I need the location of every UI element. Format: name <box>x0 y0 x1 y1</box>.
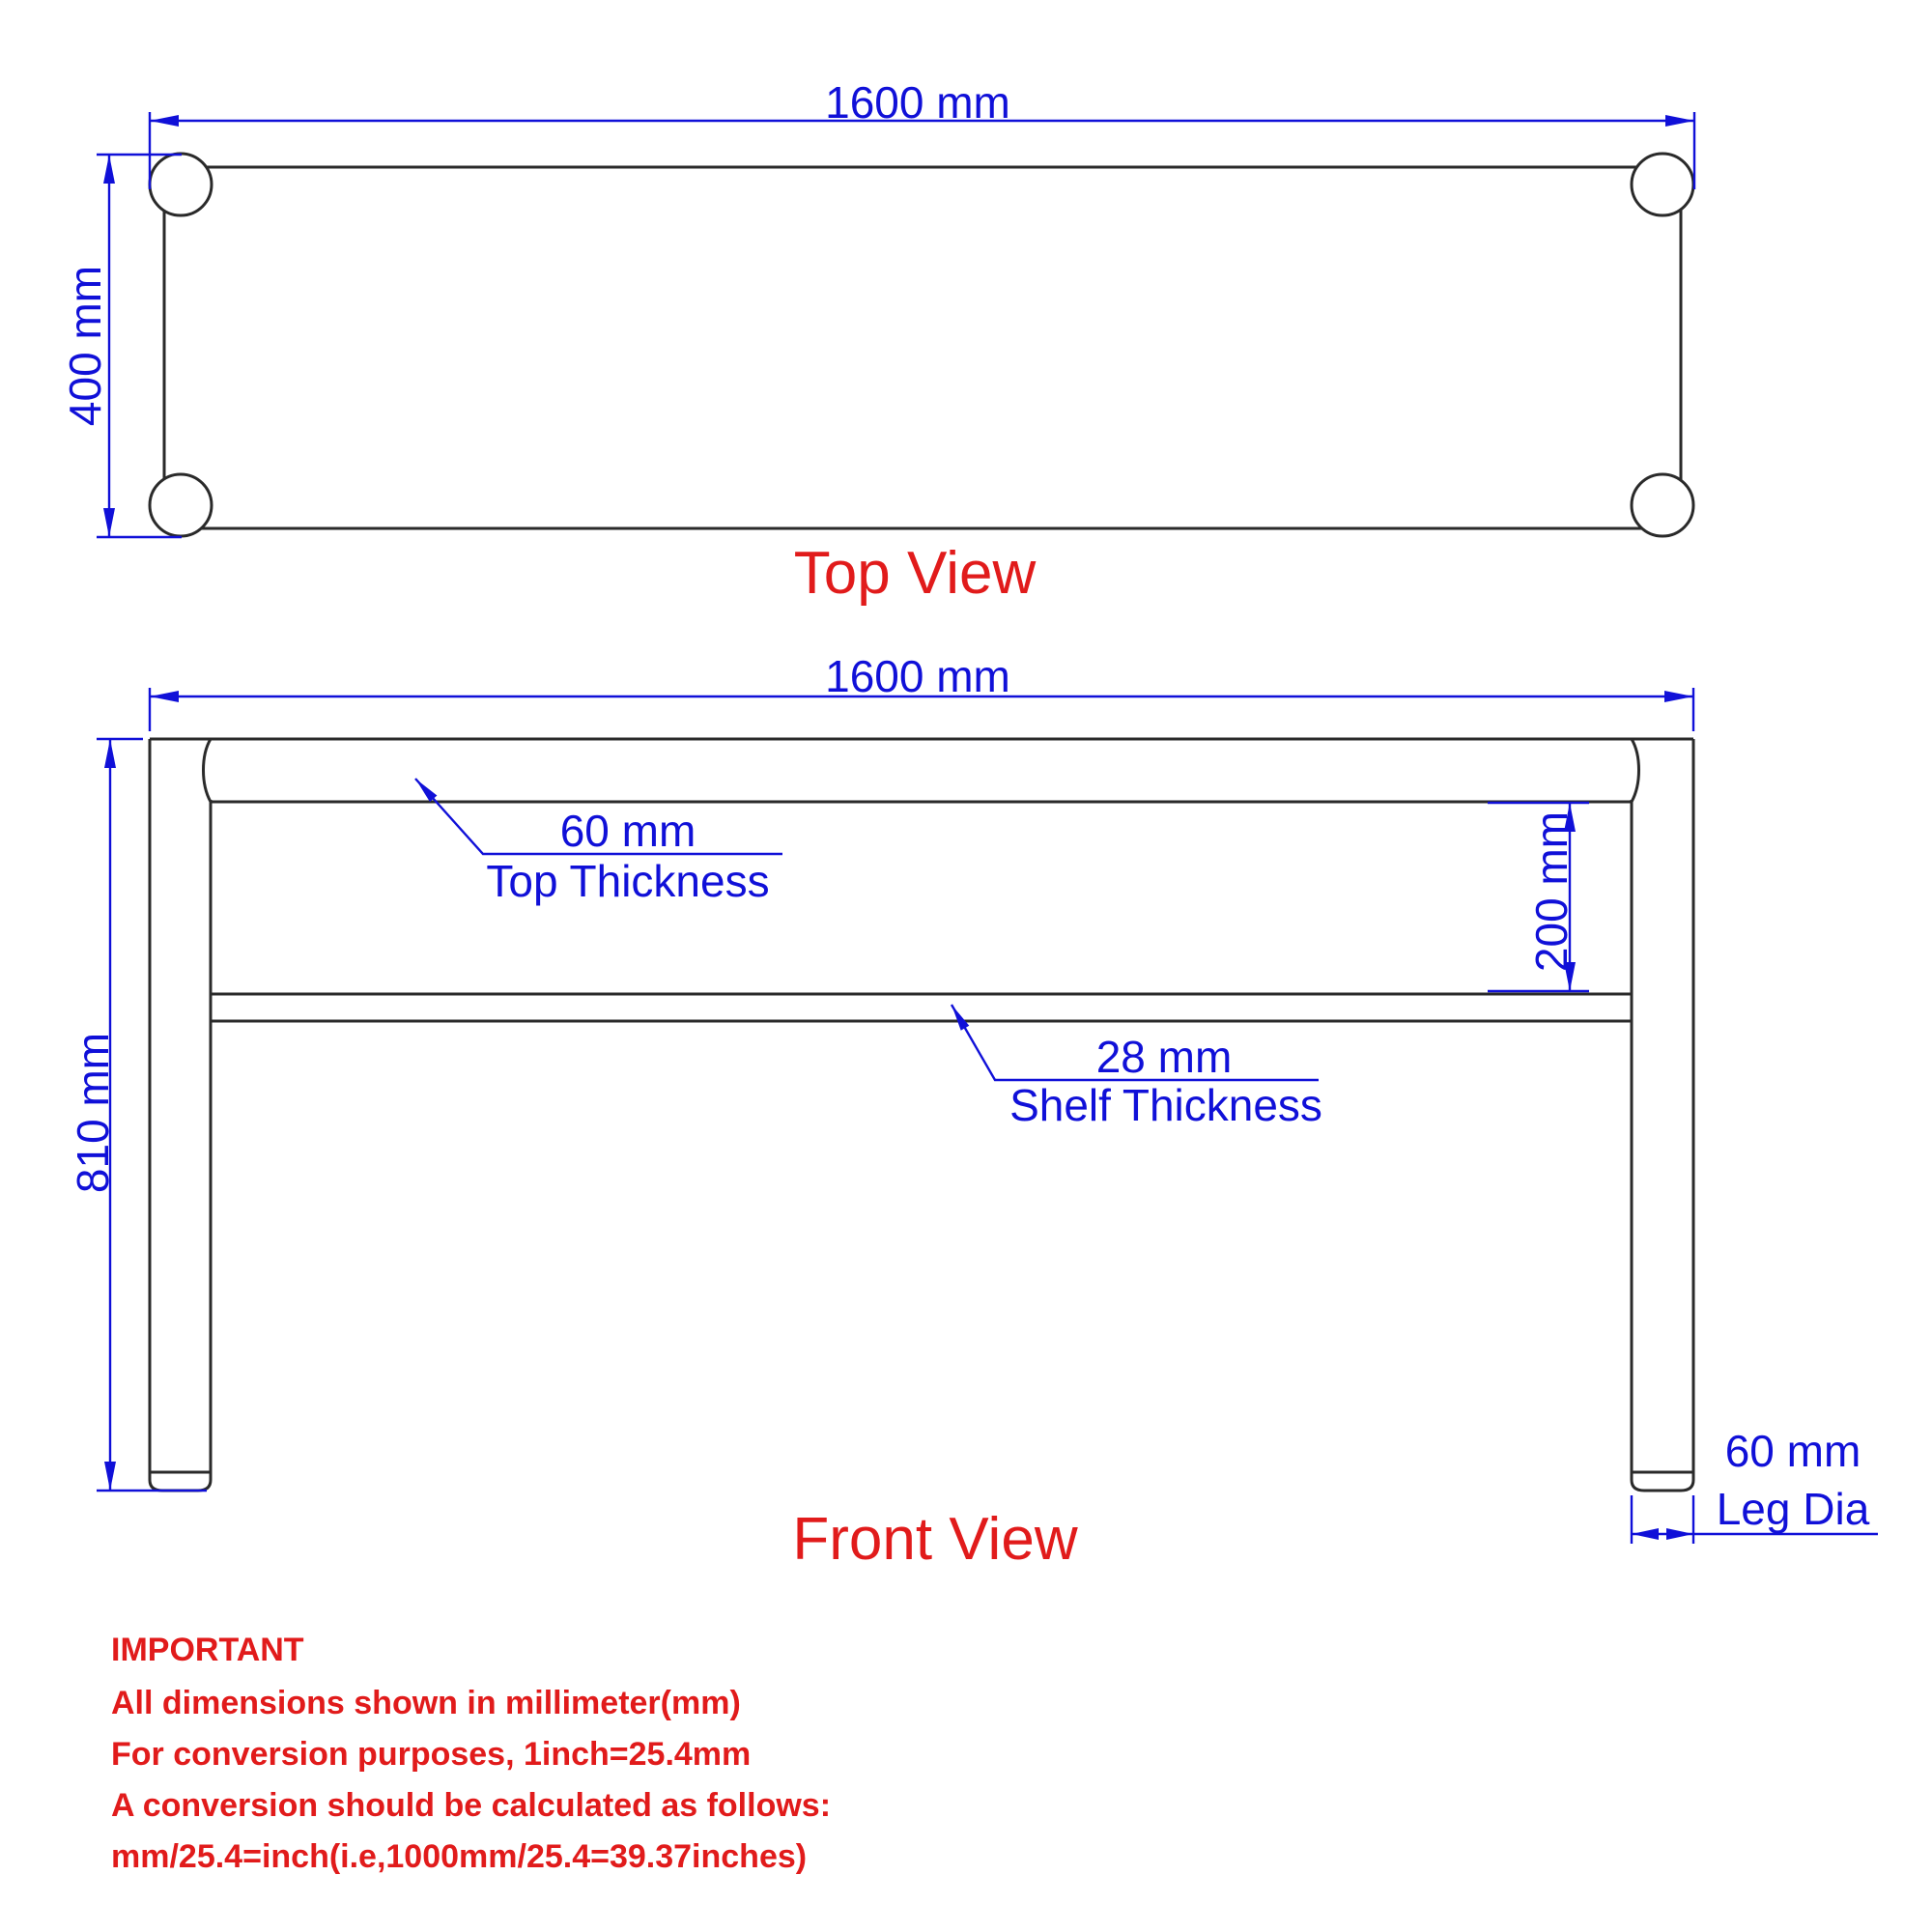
top-view-title: Top View <box>794 540 1037 607</box>
arrow-right-icon <box>1664 691 1693 702</box>
left-leg-top-fillet <box>204 739 212 802</box>
tabletop-outline <box>164 167 1681 528</box>
arrow-right-icon <box>1666 1528 1693 1540</box>
notes-line: For conversion purposes, 1inch=25.4mm <box>111 1736 751 1773</box>
arrow-left-icon <box>150 115 179 127</box>
furniture-dimension-drawing: 1600 mm 400 mm Top View 1600 mm <box>0 0 1932 1932</box>
leg-circle-bottom-right <box>1632 474 1693 536</box>
important-notes: IMPORTANT All dimensions shown in millim… <box>111 1632 831 1875</box>
arrow-up-icon <box>103 155 115 184</box>
top-thickness-label: Top Thickness <box>486 856 769 906</box>
leader-arrow-icon <box>952 1005 969 1031</box>
left-leg-foot-cap <box>150 1472 211 1491</box>
leg-circle-top-left <box>150 154 212 215</box>
notes-line: A conversion should be calculated as fol… <box>111 1787 831 1824</box>
technical-drawing-page: 1600 mm 400 mm Top View 1600 mm <box>0 0 1932 1932</box>
top-view-width-dim-label: 1600 mm <box>825 77 1010 128</box>
front-view-gap-dim-label: 200 mm <box>1526 811 1577 972</box>
front-view-height-dim-label: 810 mm <box>68 1033 118 1193</box>
front-view-width-dim-label: 1600 mm <box>825 651 1010 701</box>
arrow-down-icon <box>103 508 115 537</box>
right-leg-top-fillet <box>1632 739 1639 802</box>
notes-line: mm/25.4=inch(i.e,1000mm/25.4=39.37inches… <box>111 1838 807 1875</box>
notes-line: All dimensions shown in millimeter(mm) <box>111 1685 741 1721</box>
leg-dia-value: 60 mm <box>1725 1426 1861 1476</box>
shelf-thickness-value: 28 mm <box>1096 1032 1233 1082</box>
leader-arrow-icon <box>415 779 437 802</box>
shelf-thickness-label: Shelf Thickness <box>1009 1080 1322 1130</box>
arrow-up-icon <box>104 739 116 768</box>
leg-circle-bottom-left <box>150 474 212 536</box>
top-view-depth-dim-label: 400 mm <box>60 266 110 426</box>
top-thickness-value: 60 mm <box>560 806 696 856</box>
leg-circle-top-right <box>1632 154 1693 215</box>
right-leg-foot-cap <box>1632 1472 1693 1491</box>
front-view-title: Front View <box>792 1506 1077 1573</box>
notes-heading: IMPORTANT <box>111 1632 304 1668</box>
arrow-left-icon <box>1632 1528 1659 1540</box>
arrow-down-icon <box>104 1462 116 1491</box>
front-view: 1600 mm 810 mm 200 mm 60 m <box>68 651 1878 1573</box>
top-view: 1600 mm 400 mm Top View <box>60 77 1694 607</box>
leg-dia-label: Leg Dia <box>1717 1484 1870 1534</box>
arrow-right-icon <box>1665 115 1694 127</box>
arrow-left-icon <box>150 691 179 702</box>
